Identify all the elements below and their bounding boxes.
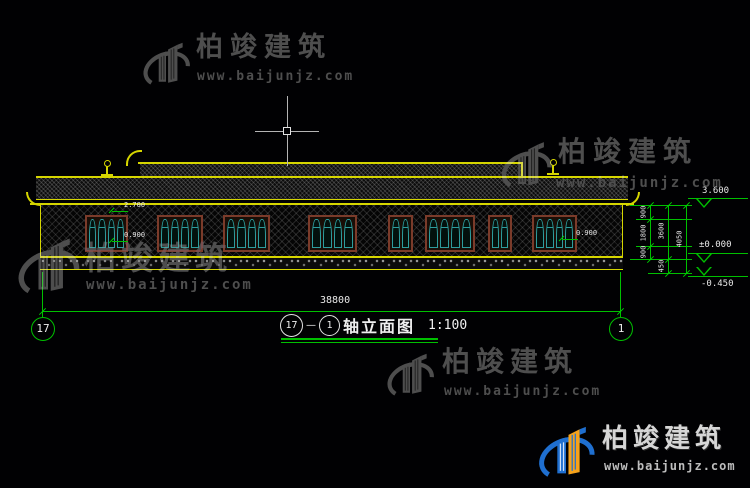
- overall-width-value: 38800: [320, 296, 350, 306]
- watermark-logo-icon: [140, 32, 192, 94]
- title-text: 轴立面图: [343, 313, 415, 337]
- window-light: [402, 219, 410, 248]
- leader-line: [112, 211, 128, 212]
- window-light: [501, 219, 508, 248]
- axis-bubble-right: 1: [609, 317, 633, 341]
- window-light: [546, 219, 554, 248]
- brand-url: www.baijunjz.com: [86, 278, 253, 292]
- brand-text: 柏竣建筑: [196, 34, 332, 61]
- watermark-color-logo: 柏竣建筑 www.baijunjz.com: [534, 418, 748, 486]
- elevation-triangle: [696, 267, 712, 276]
- dimension-line-total: [668, 205, 669, 273]
- window-light: [429, 219, 438, 248]
- roof-finial-left: [101, 160, 113, 176]
- brand-url: www.baijunjz.com: [604, 460, 736, 472]
- window-group: [388, 215, 413, 252]
- eave-left-curl: [26, 192, 40, 206]
- ground-elevation-value: ±0.000: [699, 241, 732, 250]
- watermark-bottom-center: 柏竣建筑 www.baijunjz.com: [384, 342, 644, 408]
- drawing-title: 17 — 1 轴立面图 1:100: [280, 313, 467, 337]
- window-group: [308, 215, 357, 252]
- window-light: [344, 219, 353, 248]
- dim-value-4050: 4050: [677, 231, 684, 248]
- watermark-left-middle: 柏竣建筑 www.baijunjz.com: [14, 228, 274, 302]
- title-axis-start-bubble: 17: [280, 314, 303, 337]
- dim-value-3600: 3600: [659, 223, 666, 240]
- window-light: [451, 219, 460, 248]
- window-group: [532, 215, 577, 252]
- brand-text: 柏竣建筑: [442, 348, 578, 376]
- eave-line-upper: [36, 199, 628, 200]
- elevation-triangle: [696, 199, 712, 208]
- window-light: [565, 219, 573, 248]
- window-light: [536, 219, 544, 248]
- window-light: [440, 219, 449, 248]
- axis-bubble-left: 17: [31, 317, 55, 341]
- window-light: [334, 219, 343, 248]
- dim-value-900-upper: 900: [641, 206, 648, 219]
- brand-text: 柏竣建筑: [84, 242, 232, 274]
- window-head-elevation-note: 2.700: [124, 202, 145, 209]
- elevation-line-below-ground: [688, 276, 748, 277]
- window-group: [425, 215, 475, 252]
- window-sill-elevation-note: 0.900: [576, 230, 597, 237]
- watermark-top-left: 柏竣建筑 www.baijunjz.com: [140, 30, 400, 100]
- extension-line: [636, 219, 692, 220]
- title-underline: [281, 338, 438, 340]
- window-light: [462, 219, 471, 248]
- elevation-triangle: [696, 254, 712, 263]
- watermark-logo-icon: [498, 132, 554, 196]
- dimension-line-chain: [650, 205, 651, 259]
- upper-roof-left-eave-curl: [126, 150, 142, 166]
- dim-value-450: 450: [659, 260, 666, 273]
- window-light: [492, 219, 499, 248]
- brand-text: 柏竣建筑: [558, 138, 698, 166]
- window-light: [556, 219, 564, 248]
- title-scale: 1:100: [428, 318, 467, 333]
- window-light: [323, 219, 332, 248]
- dim-value-900-lower: 900: [641, 246, 648, 259]
- window-light: [392, 219, 400, 248]
- watermark-logo-icon: [14, 228, 82, 302]
- brand-url: www.baijunjz.com: [197, 70, 354, 83]
- title-axis-end-bubble: 1: [319, 315, 340, 336]
- dimension-line-overall: [686, 205, 687, 273]
- brand-text: 柏竣建筑: [602, 426, 726, 452]
- brand-url: www.baijunjz.com: [444, 385, 601, 398]
- finial-stem: [106, 166, 108, 174]
- title-dash: —: [306, 320, 316, 331]
- cad-viewport[interactable]: 2.700 0.900 0.900 3.600 ±0.000 -0.450: [0, 0, 750, 488]
- watermark-logo-icon: [384, 342, 436, 406]
- watermark-right: 柏竣建筑 www.baijunjz.com: [498, 132, 750, 198]
- overall-dimension-line: [42, 311, 621, 312]
- window-light: [312, 219, 321, 248]
- color-logo-icon: [534, 420, 598, 482]
- window-group: [488, 215, 512, 252]
- dim-value-1800: 1800: [641, 225, 648, 242]
- finial-knob: [104, 160, 111, 167]
- brand-url: www.baijunjz.com: [556, 176, 723, 190]
- below-ground-elevation-value: -0.450: [701, 280, 734, 289]
- leader-line: [562, 239, 578, 240]
- crosshair-pickbox: [283, 127, 291, 135]
